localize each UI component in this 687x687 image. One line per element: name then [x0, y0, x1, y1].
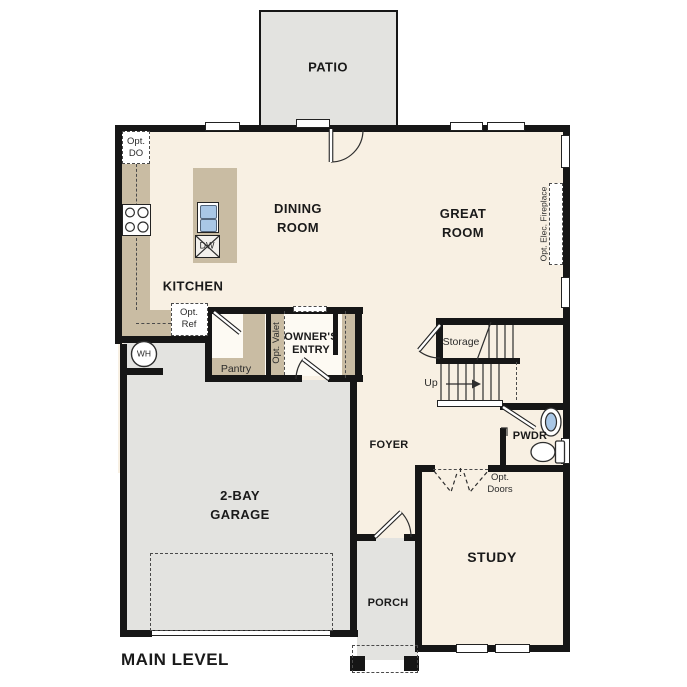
wall-segment	[120, 344, 127, 637]
label-opt-ref: Opt. Ref	[180, 307, 198, 331]
window	[561, 438, 570, 464]
wall-segment	[404, 534, 422, 541]
sink-basin	[200, 219, 217, 232]
opt-window	[293, 306, 327, 312]
room-label-foyer: FOYER	[370, 438, 409, 454]
window	[450, 122, 483, 131]
window	[561, 277, 570, 308]
stair-rail	[437, 400, 503, 407]
floor-plan: PATIO DINING ROOM GREAT ROOM KITCHEN Opt…	[0, 0, 687, 687]
wall-segment	[500, 403, 567, 410]
room-label-patio: PATIO	[308, 59, 348, 78]
foyer-floor	[353, 468, 418, 540]
dashed-line	[345, 311, 346, 378]
wall-segment	[500, 428, 506, 470]
wall-segment	[121, 368, 163, 375]
label-opt-doors: Opt. Doors	[487, 472, 512, 496]
label-water-heater: WH	[137, 349, 151, 360]
room-label-dining: DINING ROOM	[274, 200, 322, 238]
room-label-kitchen: KITCHEN	[163, 278, 224, 297]
label-pantry: Pantry	[221, 363, 251, 375]
room-label-great: GREAT ROOM	[440, 205, 487, 243]
label-opt-fireplace: Opt. Elec. Fireplace	[539, 187, 550, 262]
counter-centerline	[136, 164, 137, 310]
opt-doors-opening	[433, 469, 488, 470]
window	[487, 122, 525, 131]
dashed-line	[516, 362, 517, 400]
window	[205, 122, 240, 131]
entry-closet	[342, 311, 355, 378]
label-storage: Storage	[443, 336, 480, 348]
opt-fireplace	[549, 183, 563, 265]
room-label-study: STUDY	[467, 547, 516, 567]
plan-title: MAIN LEVEL	[121, 648, 229, 673]
window	[495, 644, 530, 653]
room-label-owners-entry: OWNER'S ENTRY	[284, 331, 338, 357]
room-label-pwdr: PWDR	[513, 429, 547, 445]
garage-door-dashed-outline	[150, 553, 333, 631]
wall-segment	[436, 358, 520, 364]
wall-segment	[350, 378, 357, 637]
wall-segment	[205, 375, 302, 382]
label-dishwasher: DW	[200, 240, 215, 251]
wall-segment	[355, 307, 362, 378]
wall-segment	[563, 125, 570, 652]
window	[456, 644, 488, 653]
room-label-porch: PORCH	[368, 596, 409, 612]
wall-segment	[350, 534, 376, 541]
cooktop-icon	[122, 204, 151, 236]
label-opt-valet: Opt. Valet	[271, 322, 283, 364]
wall-segment	[436, 318, 570, 325]
label-up: Up	[424, 377, 437, 389]
wall-segment	[488, 465, 567, 472]
sink-basin	[200, 205, 217, 219]
room-label-garage: 2-BAY GARAGE	[210, 487, 269, 525]
wall-segment	[115, 336, 212, 343]
wall-segment	[415, 645, 570, 652]
label-opt-double-oven: Opt. DO	[127, 136, 145, 160]
wall-segment	[120, 630, 152, 637]
window	[561, 135, 570, 168]
wall-segment	[415, 465, 422, 652]
wall-segment	[115, 125, 122, 344]
patio-door-panel	[296, 119, 330, 128]
counter-centerline	[136, 323, 171, 324]
porch-dashed-outline	[352, 645, 418, 673]
